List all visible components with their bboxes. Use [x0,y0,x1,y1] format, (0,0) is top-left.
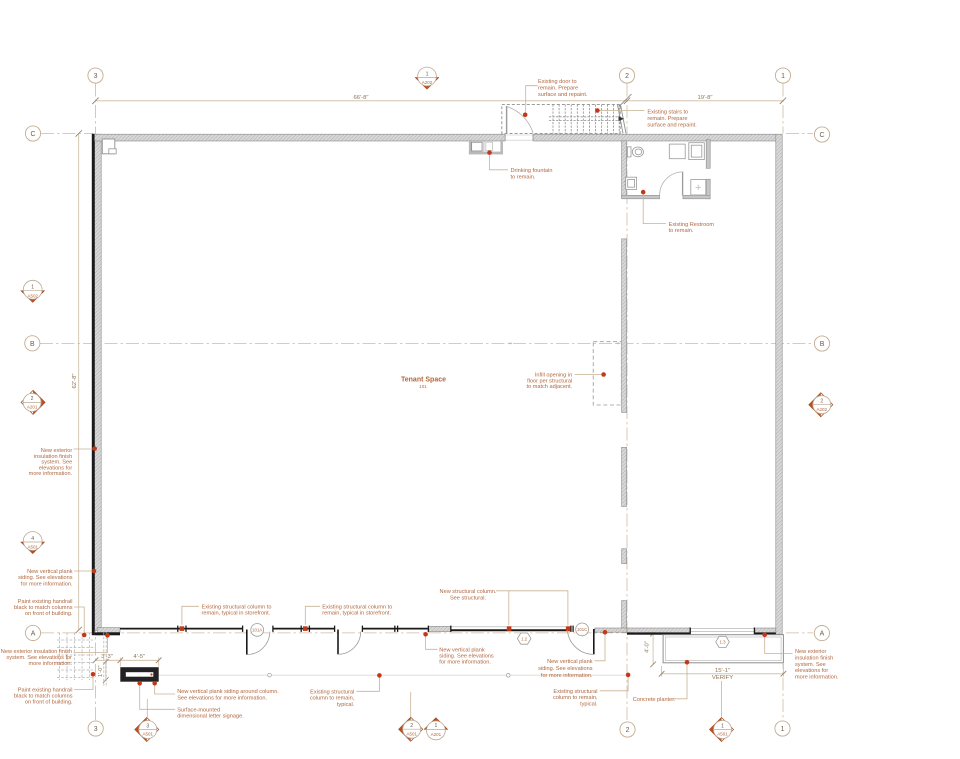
svg-text:1: 1 [721,723,724,729]
svg-text:3: 3 [94,73,98,80]
svg-text:remain. Prepare: remain. Prepare [538,85,578,91]
svg-text:typical.: typical. [580,702,598,708]
svg-text:2: 2 [820,399,823,405]
svg-text:elevations for: elevations for [795,668,828,674]
svg-text:See structural.: See structural. [450,595,487,601]
svg-text:surface and repaint.: surface and repaint. [538,92,588,98]
svg-text:2: 2 [31,396,34,402]
svg-text:C: C [31,131,36,138]
svg-text:Existing structural: Existing structural [310,689,354,695]
svg-text:remain, typical in storefront.: remain, typical in storefront. [202,610,271,616]
svg-text:1: 1 [781,73,785,80]
svg-text:A501: A501 [27,545,38,550]
svg-text:for more information.: for more information. [439,659,491,665]
svg-text:A201: A201 [27,405,38,410]
svg-text:VERIFY: VERIFY [712,675,733,681]
svg-text:surface and repaint.: surface and repaint. [647,122,697,128]
svg-text:on front of building.: on front of building. [25,611,73,617]
svg-text:1: 1 [434,723,437,729]
svg-text:to match adjacent.: to match adjacent. [526,384,572,390]
svg-text:1: 1 [781,726,785,733]
svg-text:2: 2 [625,73,629,80]
svg-text:to remain.: to remain. [669,228,694,234]
svg-text:siding. See elevations: siding. See elevations [538,666,593,672]
svg-text:Concrete planter.: Concrete planter. [633,697,676,703]
svg-text:Existing stairs to: Existing stairs to [647,110,688,116]
svg-text:for more information.: for more information. [541,673,593,679]
svg-text:on front of building.: on front of building. [25,700,73,706]
svg-text:3'-3": 3'-3" [101,654,113,660]
svg-text:1'-0": 1'-0" [98,665,104,677]
svg-text:insulation finish: insulation finish [795,655,833,661]
svg-text:A202: A202 [422,80,433,85]
svg-text:B: B [30,341,35,348]
svg-text:A: A [31,630,36,637]
svg-text:more information.: more information. [29,471,73,477]
svg-text:1: 1 [426,71,429,77]
svg-text:system. See: system. See [795,662,826,668]
svg-text:Existing Restroom: Existing Restroom [669,222,715,228]
svg-text:dimensional letter signage.: dimensional letter signage. [177,714,244,720]
svg-text:column to remain,: column to remain, [553,695,598,701]
svg-text:101A: 101A [252,627,262,632]
svg-text:B: B [820,341,825,348]
svg-text:A202: A202 [817,407,828,412]
svg-text:2: 2 [626,727,630,734]
svg-text:4'-5": 4'-5" [133,654,145,660]
svg-text:3: 3 [146,723,149,729]
svg-text:A201: A201 [431,732,442,737]
svg-text:to remain.: to remain. [511,174,536,180]
svg-text:66'-8": 66'-8" [353,95,368,101]
svg-text:A501: A501 [406,731,417,736]
svg-text:1.3: 1.3 [720,640,727,645]
svg-text:remain. Prepare: remain. Prepare [647,116,687,122]
svg-text:typical.: typical. [337,702,355,708]
svg-text:New vertical plank siding arou: New vertical plank siding around column. [177,689,279,695]
svg-text:3: 3 [94,726,98,733]
svg-text:A502: A502 [27,293,38,298]
svg-text:Existing structural: Existing structural [553,689,597,695]
svg-text:15'-1": 15'-1" [715,668,730,674]
svg-text:siding. See elevations: siding. See elevations [18,575,73,581]
svg-text:A501: A501 [143,732,154,737]
svg-text:New vertical plank: New vertical plank [547,659,593,665]
svg-text:101: 101 [419,384,427,389]
svg-text:4: 4 [31,536,34,542]
svg-text:Existing door to: Existing door to [538,79,577,85]
svg-text:4'-0": 4'-0" [645,641,651,653]
svg-text:more information.: more information. [28,661,72,667]
svg-text:New exterior: New exterior [795,649,827,655]
svg-text:Drinking fountain: Drinking fountain [511,168,553,174]
svg-text:See elevations for more inform: See elevations for more information. [177,695,267,701]
svg-text:New vertical plank: New vertical plank [27,569,73,575]
svg-text:Surface-mounted: Surface-mounted [177,707,220,713]
svg-text:1: 1 [31,285,34,291]
svg-text:C: C [820,132,825,139]
svg-text:A501: A501 [717,732,728,737]
svg-text:62'-8": 62'-8" [72,373,78,388]
svg-text:for more information.: for more information. [21,581,73,587]
svg-text:A: A [820,631,825,638]
svg-text:Tenant Space: Tenant Space [401,377,446,384]
svg-text:2: 2 [410,723,413,729]
svg-text:New structural column.: New structural column. [440,589,497,595]
svg-text:1.2: 1.2 [521,636,528,641]
svg-text:more information.: more information. [795,675,839,681]
svg-text:101C: 101C [577,627,587,632]
svg-text:column to remain,: column to remain, [310,696,355,702]
svg-text:19'-8": 19'-8" [697,95,712,101]
svg-text:remain, typical in storefront.: remain, typical in storefront. [322,610,391,616]
